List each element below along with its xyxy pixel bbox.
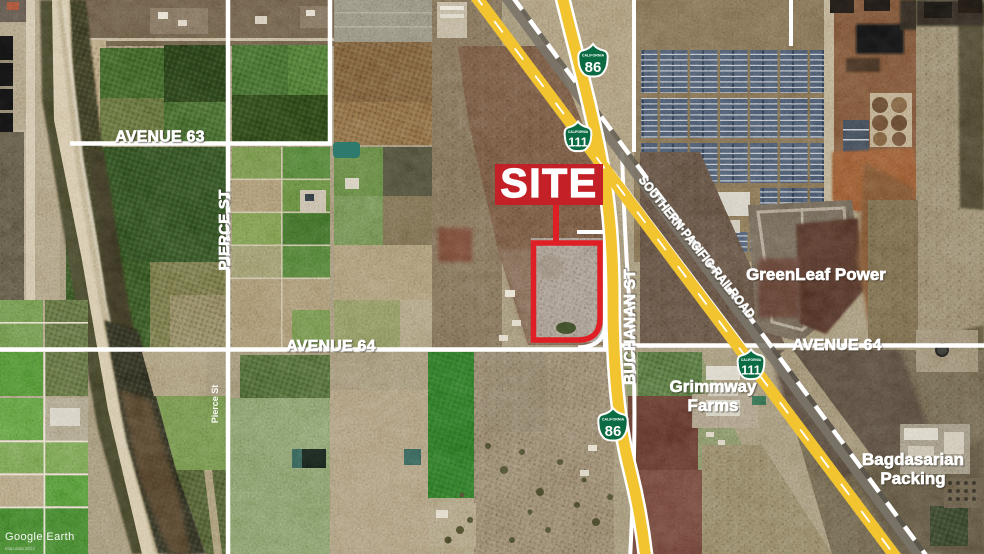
svg-text:AVENUE 64: AVENUE 64 [286, 338, 376, 355]
svg-text:86: 86 [585, 59, 602, 76]
svg-text:SITE: SITE [500, 160, 597, 206]
svg-text:AVENUE 64: AVENUE 64 [792, 337, 882, 354]
svg-text:CALIFORNIA: CALIFORNIA [741, 358, 762, 362]
svg-text:Grimmway: Grimmway [670, 377, 757, 396]
svg-text:111: 111 [568, 136, 588, 150]
svg-text:Pierce St: Pierce St [210, 385, 220, 424]
svg-text:86: 86 [605, 423, 622, 440]
svg-text:Bagdasarian: Bagdasarian [862, 450, 964, 469]
svg-text:CALIFORNIA: CALIFORNIA [568, 130, 589, 134]
svg-text:Map data 2024: Map data 2024 [5, 546, 36, 551]
svg-text:BUCHANAN ST: BUCHANAN ST [622, 269, 639, 385]
svg-text:PIERCE ST: PIERCE ST [216, 190, 233, 271]
svg-text:GreenLeaf Power: GreenLeaf Power [746, 265, 886, 284]
svg-text:CALIFORNIA: CALIFORNIA [602, 418, 625, 422]
svg-text:Farms: Farms [687, 396, 738, 415]
svg-text:111: 111 [741, 364, 761, 378]
svg-text:Packing: Packing [880, 469, 945, 488]
svg-text:CALIFORNIA: CALIFORNIA [582, 54, 605, 58]
svg-text:Google Earth: Google Earth [5, 531, 75, 543]
svg-text:AVENUE 63: AVENUE 63 [115, 129, 205, 146]
